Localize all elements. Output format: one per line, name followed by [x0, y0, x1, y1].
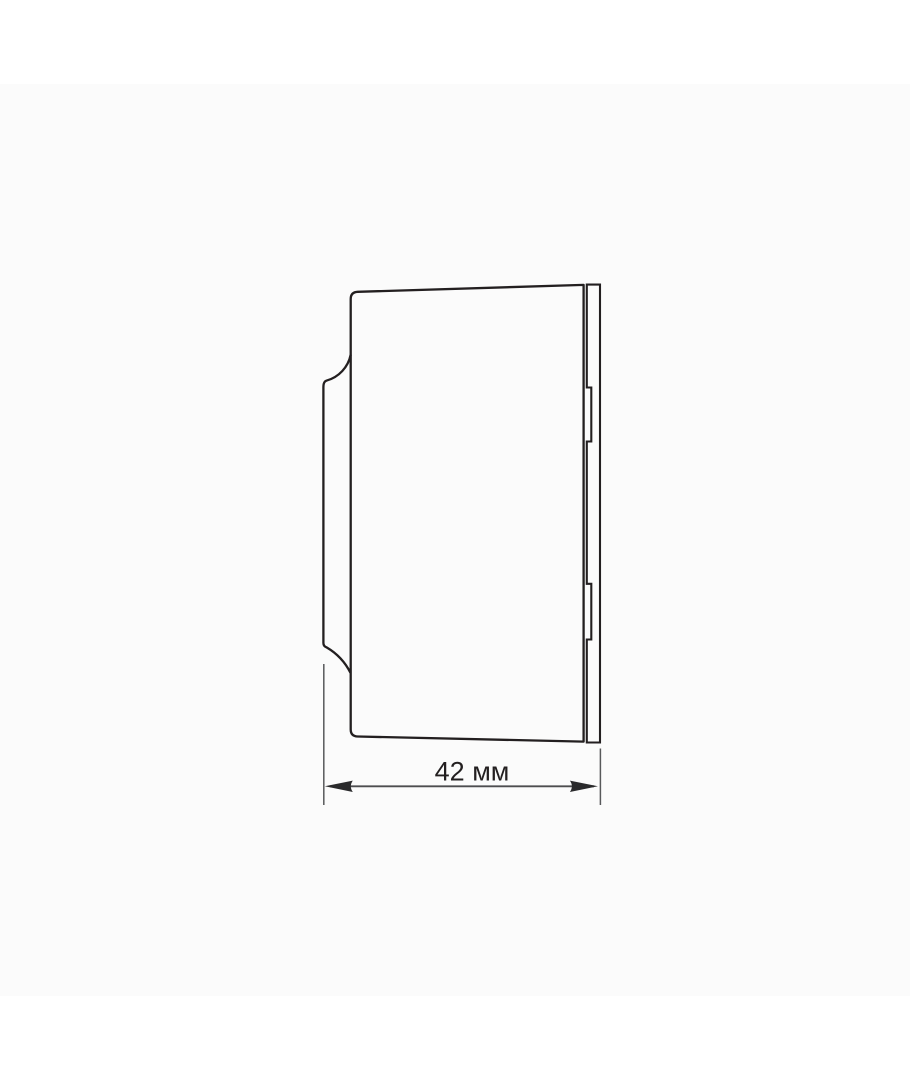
svg-text:42 мм: 42 мм	[435, 756, 510, 786]
